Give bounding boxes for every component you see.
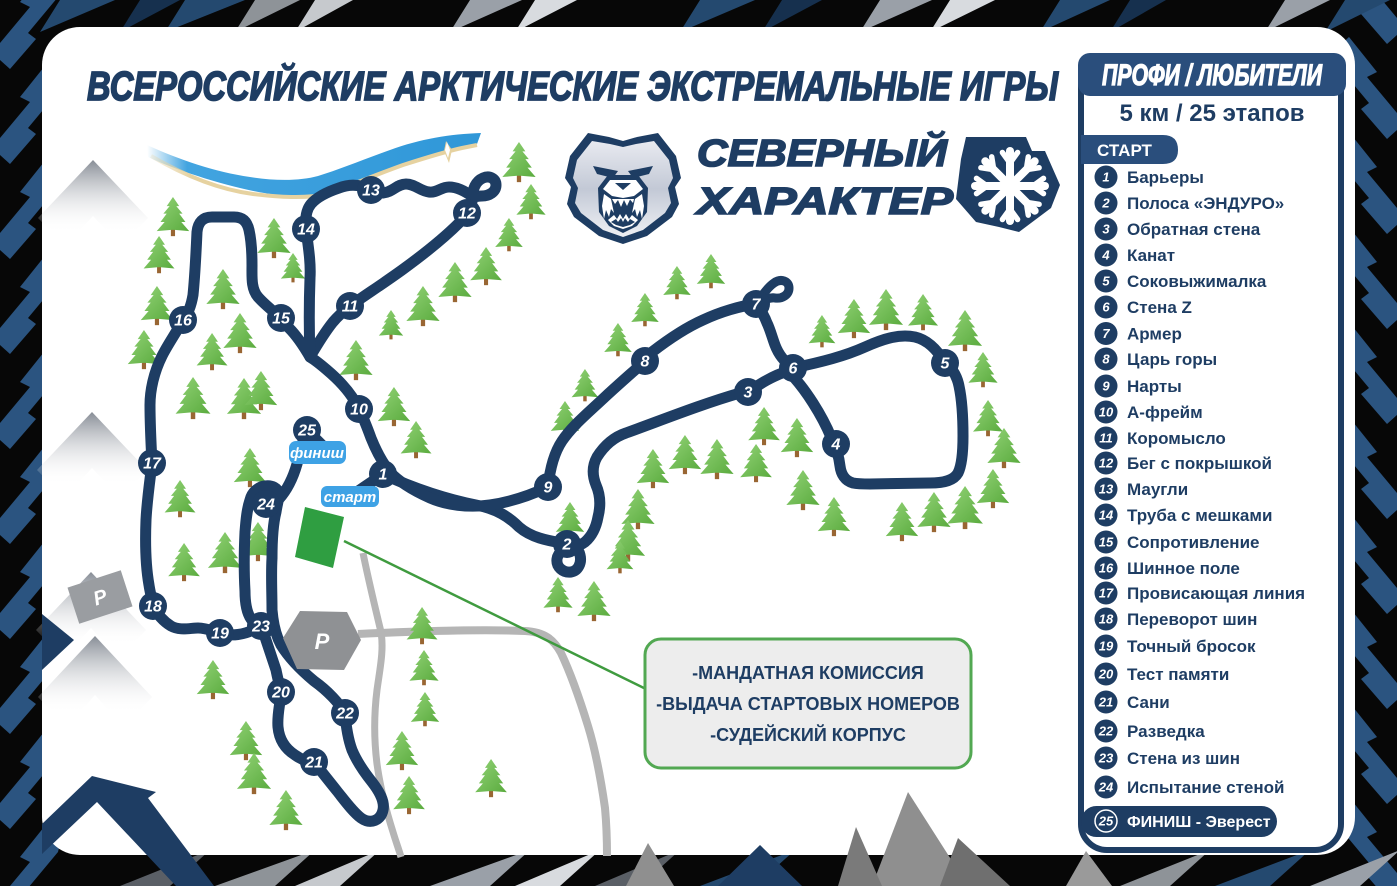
svg-text:Сопротивление: Сопротивление bbox=[1127, 533, 1259, 552]
svg-text:Полоса «ЭНДУРО»: Полоса «ЭНДУРО» bbox=[1127, 194, 1284, 213]
svg-text:22: 22 bbox=[335, 706, 354, 723]
svg-text:10: 10 bbox=[350, 402, 368, 419]
svg-text:17: 17 bbox=[143, 456, 162, 473]
svg-text:Бег с покрышкой: Бег с покрышкой bbox=[1127, 454, 1272, 473]
svg-text:СЕВЕРНЫЙ: СЕВЕРНЫЙ bbox=[697, 130, 948, 175]
svg-text:25: 25 bbox=[297, 423, 317, 440]
svg-text:15: 15 bbox=[272, 311, 291, 328]
svg-text:старт: старт bbox=[324, 489, 377, 506]
svg-text:11: 11 bbox=[1099, 431, 1113, 446]
svg-text:Коромысло: Коромысло bbox=[1127, 429, 1226, 448]
svg-text:Армер: Армер bbox=[1127, 325, 1182, 344]
svg-text:Маугли: Маугли bbox=[1127, 480, 1188, 499]
svg-text:Нарты: Нарты bbox=[1127, 377, 1182, 396]
svg-text:2: 2 bbox=[562, 537, 572, 554]
svg-text:23: 23 bbox=[251, 619, 270, 636]
svg-text:6: 6 bbox=[1102, 300, 1110, 315]
svg-text:СТАРТ: СТАРТ bbox=[1097, 141, 1153, 160]
svg-text:ПРОФИ / ЛЮБИТЕЛИ: ПРОФИ / ЛЮБИТЕЛИ bbox=[1102, 59, 1323, 92]
svg-text:Разведка: Разведка bbox=[1127, 722, 1205, 741]
svg-text:Барьеры: Барьеры bbox=[1127, 168, 1204, 187]
svg-text:12: 12 bbox=[1099, 456, 1114, 471]
svg-text:15: 15 bbox=[1099, 535, 1114, 550]
svg-text:16: 16 bbox=[1099, 561, 1114, 576]
svg-text:Стена из шин: Стена из шин bbox=[1127, 749, 1240, 768]
svg-text:24: 24 bbox=[1098, 780, 1114, 795]
svg-text:21: 21 bbox=[1098, 695, 1113, 710]
svg-text:8: 8 bbox=[1102, 352, 1110, 367]
svg-text:Труба с мешками: Труба с мешками bbox=[1127, 506, 1272, 525]
svg-text:8: 8 bbox=[641, 354, 650, 371]
svg-text:22: 22 bbox=[1098, 724, 1114, 739]
svg-text:ВСЕРОССИЙСКИЕ АРКТИЧЕСКИЕ ЭКСТ: ВСЕРОССИЙСКИЕ АРКТИЧЕСКИЕ ЭКСТРЕМАЛЬНЫЕ … bbox=[87, 62, 1059, 109]
svg-text:7: 7 bbox=[1102, 326, 1110, 341]
svg-text:ХАРАКТЕР: ХАРАКТЕР bbox=[694, 181, 953, 223]
svg-text:4: 4 bbox=[1101, 248, 1110, 263]
svg-text:17: 17 bbox=[1099, 586, 1114, 601]
svg-text:Тест памяти: Тест памяти bbox=[1127, 665, 1229, 684]
svg-text:3: 3 bbox=[744, 385, 753, 402]
svg-text:2: 2 bbox=[1101, 196, 1110, 211]
svg-text:Обратная стена: Обратная стена bbox=[1127, 220, 1261, 239]
svg-text:P: P bbox=[315, 629, 330, 654]
svg-text:16: 16 bbox=[174, 313, 192, 330]
svg-text:13: 13 bbox=[1099, 482, 1114, 497]
svg-text:1: 1 bbox=[379, 467, 388, 484]
svg-text:Испытание стеной: Испытание стеной bbox=[1127, 778, 1284, 797]
svg-text:ФИНИШ - Эверест: ФИНИШ - Эверест bbox=[1127, 814, 1271, 831]
svg-text:9: 9 bbox=[544, 480, 553, 497]
svg-text:23: 23 bbox=[1098, 751, 1114, 766]
svg-text:24: 24 bbox=[256, 497, 275, 514]
svg-text:Канат: Канат bbox=[1127, 246, 1175, 265]
svg-text:А-фрейм: А-фрейм bbox=[1127, 403, 1203, 422]
svg-text:Точный бросок: Точный бросок bbox=[1127, 637, 1256, 656]
svg-text:-СУДЕЙСКИЙ КОРПУС: -СУДЕЙСКИЙ КОРПУС bbox=[710, 724, 906, 745]
svg-text:25: 25 bbox=[1098, 814, 1114, 829]
svg-text:14: 14 bbox=[297, 222, 315, 239]
svg-text:14: 14 bbox=[1099, 508, 1114, 523]
svg-text:5 км / 25 этапов: 5 км / 25 этапов bbox=[1119, 100, 1304, 127]
svg-text:10: 10 bbox=[1099, 405, 1114, 420]
svg-text:20: 20 bbox=[1098, 667, 1114, 682]
svg-text:20: 20 bbox=[271, 685, 290, 702]
svg-text:13: 13 bbox=[362, 183, 380, 200]
svg-text:5: 5 bbox=[1102, 274, 1110, 289]
svg-text:Провисающая линия: Провисающая линия bbox=[1127, 584, 1305, 603]
svg-text:1: 1 bbox=[1102, 170, 1109, 185]
svg-text:19: 19 bbox=[211, 626, 229, 643]
svg-text:19: 19 bbox=[1099, 639, 1114, 654]
svg-text:-МАНДАТНАЯ КОМИССИЯ: -МАНДАТНАЯ КОМИССИЯ bbox=[692, 663, 924, 683]
svg-text:18: 18 bbox=[144, 599, 162, 616]
svg-text:9: 9 bbox=[1102, 379, 1110, 394]
svg-text:6: 6 bbox=[789, 361, 798, 378]
svg-text:4: 4 bbox=[831, 437, 841, 454]
svg-text:Царь горы: Царь горы bbox=[1127, 350, 1217, 369]
svg-text:Переворот шин: Переворот шин bbox=[1127, 610, 1257, 629]
svg-text:7: 7 bbox=[752, 297, 762, 314]
svg-text:11: 11 bbox=[342, 299, 359, 316]
svg-text:финиш: финиш bbox=[290, 445, 345, 462]
svg-text:12: 12 bbox=[458, 206, 476, 223]
svg-text:3: 3 bbox=[1102, 222, 1110, 237]
svg-text:Сани: Сани bbox=[1127, 693, 1170, 712]
svg-text:21: 21 bbox=[304, 755, 323, 772]
svg-text:Соковыжималка: Соковыжималка bbox=[1127, 272, 1267, 291]
svg-text:Шинное поле: Шинное поле bbox=[1127, 559, 1240, 578]
svg-text:Стена Z: Стена Z bbox=[1127, 298, 1192, 317]
svg-text:18: 18 bbox=[1099, 612, 1114, 627]
svg-text:5: 5 bbox=[941, 356, 951, 373]
svg-text:-ВЫДАЧА СТАРТОВЫХ НОМЕРОВ: -ВЫДАЧА СТАРТОВЫХ НОМЕРОВ bbox=[656, 694, 960, 714]
